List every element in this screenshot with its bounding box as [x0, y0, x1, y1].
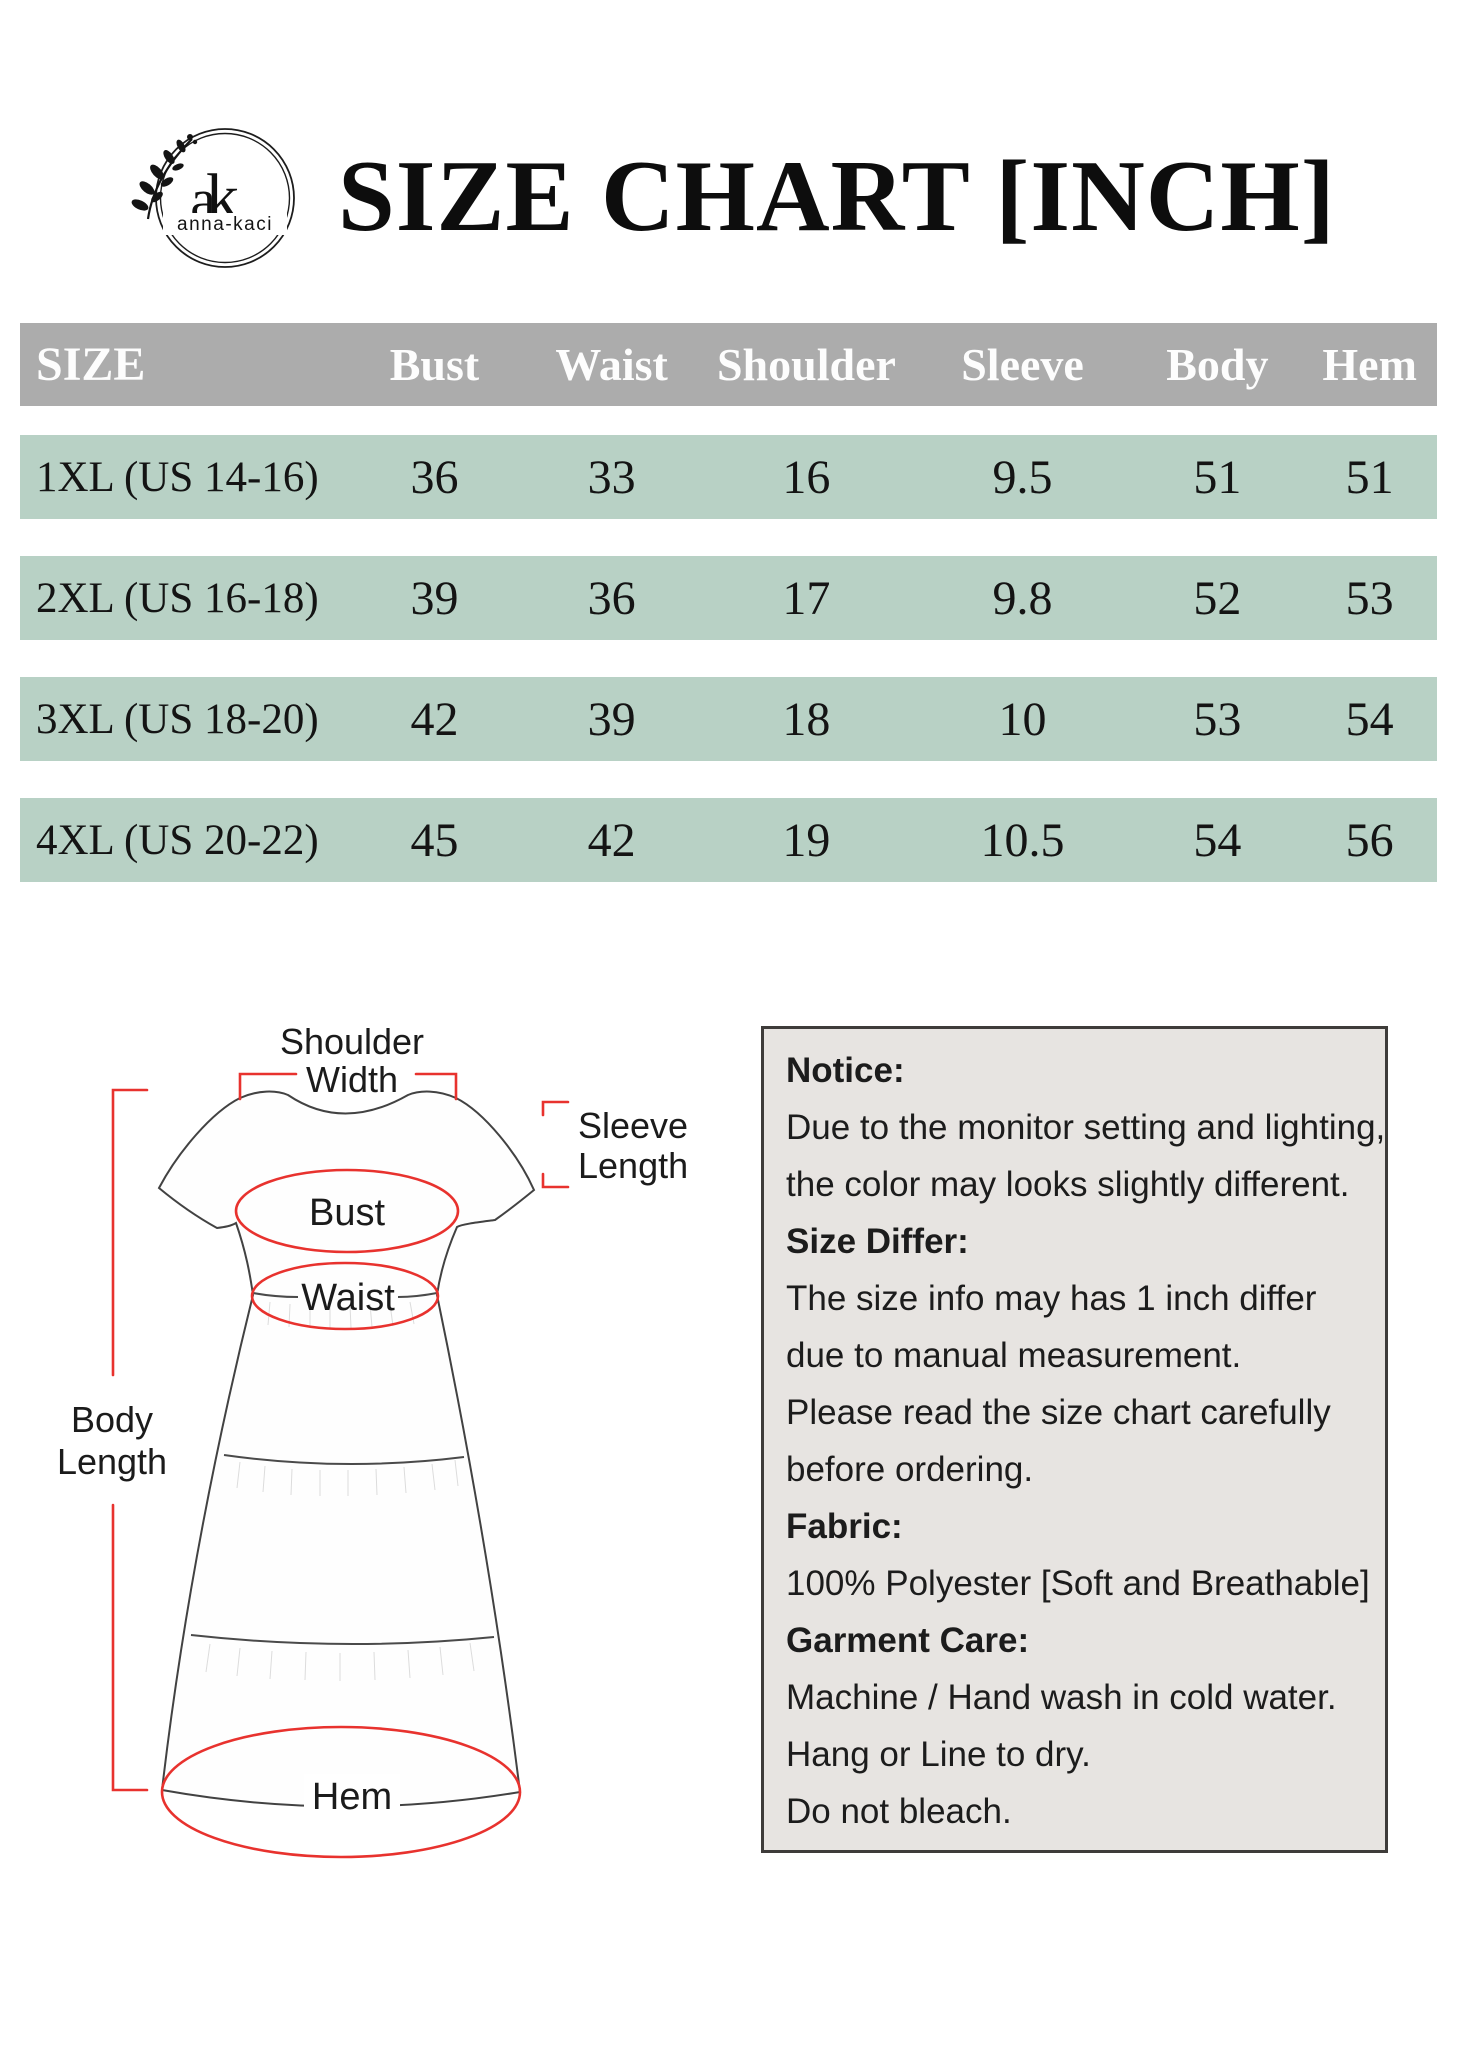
cell-bust: 39 [346, 571, 523, 626]
sleeve-length-bracket [543, 1102, 568, 1187]
notice-line: Hang or Line to dry. [786, 1726, 1375, 1783]
notice-line: due to manual measurement. [786, 1327, 1375, 1384]
notice-heading: Garment Care: [786, 1612, 1375, 1669]
cell-sleeve: 10.5 [913, 813, 1133, 868]
notice-heading: Size Differ: [786, 1213, 1375, 1270]
notice-line: Do not bleach. [786, 1783, 1375, 1840]
col-header-shoulder: Shoulder [700, 338, 913, 391]
cell-size: 2XL (US 16-18) [20, 574, 346, 623]
brand-name: anna-kaci [177, 214, 273, 235]
cell-bust: 42 [346, 692, 523, 747]
cell-waist: 39 [523, 692, 700, 747]
bust-label: Bust [309, 1192, 385, 1234]
cell-shoulder: 18 [700, 692, 913, 747]
size-table: SIZE Bust Waist Shoulder Sleeve Body Hem… [20, 323, 1437, 919]
cell-body: 52 [1132, 571, 1302, 626]
size-chart-page: a k anna-kaci SIZE CHART [INCH] SIZE Bus… [0, 0, 1462, 2048]
sleeve-length-label-line2: Length [578, 1145, 688, 1186]
cell-shoulder: 17 [700, 571, 913, 626]
cell-sleeve: 9.5 [913, 450, 1133, 505]
shoulder-width-label-line1: Shoulder [280, 1021, 424, 1062]
cell-shoulder: 16 [700, 450, 913, 505]
table-row: 1XL (US 14-16) 36 33 16 9.5 51 51 [20, 435, 1437, 519]
cell-waist: 42 [523, 813, 700, 868]
col-header-body: Body [1132, 338, 1302, 391]
notice-line: before ordering. [786, 1441, 1375, 1498]
dress-measure-diagram: Shoulder Width Sleeve Length Body Length… [0, 1020, 720, 1890]
waist-label: Waist [301, 1277, 395, 1319]
cell-bust: 45 [346, 813, 523, 868]
table-header-row: SIZE Bust Waist Shoulder Sleeve Body Hem [20, 323, 1437, 406]
cell-body: 53 [1132, 692, 1302, 747]
cell-size: 3XL (US 18-20) [20, 695, 346, 744]
leaf-branch-icon [130, 134, 197, 219]
col-header-size: SIZE [20, 337, 346, 392]
cell-waist: 36 [523, 571, 700, 626]
cell-body: 54 [1132, 813, 1302, 868]
notice-heading: Notice: [786, 1042, 1375, 1099]
notice-heading: Fabric: [786, 1498, 1375, 1555]
shoulder-width-label-line2: Width [306, 1059, 398, 1100]
cell-size: 1XL (US 14-16) [20, 453, 346, 502]
col-header-waist: Waist [523, 338, 700, 391]
cell-shoulder: 19 [700, 813, 913, 868]
body-length-label-line2: Length [57, 1441, 167, 1482]
brand-logo: a k anna-kaci [120, 125, 300, 275]
hem-label: Hem [312, 1776, 392, 1818]
notice-box: Notice: Due to the monitor setting and l… [761, 1026, 1388, 1853]
cell-sleeve: 10 [913, 692, 1133, 747]
cell-waist: 33 [523, 450, 700, 505]
notice-line: 100% Polyester [Soft and Breathable] [786, 1555, 1375, 1612]
cell-hem: 56 [1302, 813, 1437, 868]
sleeve-length-label-line1: Sleeve [578, 1105, 688, 1146]
notice-line: Due to the monitor setting and lighting, [786, 1099, 1375, 1156]
col-header-bust: Bust [346, 338, 523, 391]
notice-line: The size info may has 1 inch differ [786, 1270, 1375, 1327]
table-row: 3XL (US 18-20) 42 39 18 10 53 54 [20, 677, 1437, 761]
body-length-label-line1: Body [71, 1399, 153, 1440]
cell-hem: 53 [1302, 571, 1437, 626]
notice-line: Machine / Hand wash in cold water. [786, 1669, 1375, 1726]
table-row: 4XL (US 20-22) 45 42 19 10.5 54 56 [20, 798, 1437, 882]
table-row: 2XL (US 16-18) 39 36 17 9.8 52 53 [20, 556, 1437, 640]
cell-size: 4XL (US 20-22) [20, 816, 346, 865]
cell-body: 51 [1132, 450, 1302, 505]
cell-sleeve: 9.8 [913, 571, 1133, 626]
cell-bust: 36 [346, 450, 523, 505]
body-length-bracket [113, 1090, 147, 1790]
cell-hem: 51 [1302, 450, 1437, 505]
notice-line: the color may looks slightly different. [786, 1156, 1375, 1213]
col-header-sleeve: Sleeve [913, 338, 1133, 391]
col-header-hem: Hem [1302, 338, 1437, 391]
notice-line: Please read the size chart carefully [786, 1384, 1375, 1441]
cell-hem: 54 [1302, 692, 1437, 747]
page-title: SIZE CHART [INCH] [338, 138, 1336, 255]
